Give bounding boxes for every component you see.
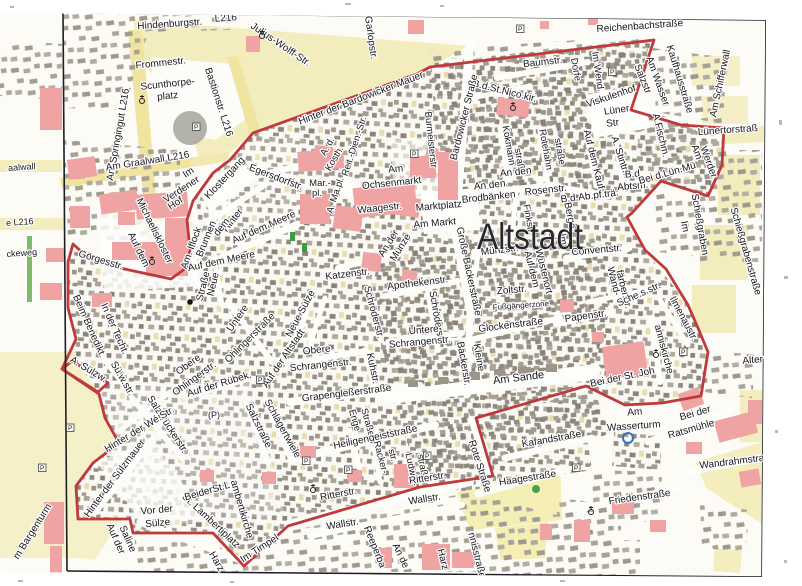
svg-text:P: P	[518, 26, 522, 33]
svg-text:Am: Am	[388, 163, 404, 176]
svg-text:ckeweg: ckeweg	[6, 247, 37, 259]
svg-text:P: P	[346, 467, 350, 474]
svg-text:pl.: pl.	[312, 188, 322, 199]
svg-text:Altstadt: Altstadt	[477, 216, 584, 257]
svg-text:P: P	[68, 425, 72, 432]
svg-text:Sülze: Sülze	[145, 517, 171, 530]
svg-text:P: P	[258, 377, 262, 384]
svg-text:P: P	[412, 151, 416, 158]
svg-text:Am: Am	[627, 406, 643, 418]
svg-text:Im: Im	[678, 220, 691, 233]
svg-text:P: P	[194, 124, 198, 131]
svg-text:P: P	[40, 465, 44, 472]
svg-text:aalwall: aalwall	[8, 161, 36, 173]
svg-text:P: P	[610, 69, 614, 76]
svg-text:(P): (P)	[208, 410, 220, 420]
svg-text:Alter: Alter	[742, 354, 764, 367]
svg-text:P: P	[304, 458, 308, 465]
svg-text:P: P	[681, 349, 685, 356]
svg-text:platz: platz	[157, 90, 179, 103]
svg-text:Str: Str	[606, 117, 621, 130]
svg-text:P: P	[425, 453, 429, 460]
svg-text:P: P	[574, 465, 578, 472]
svg-text:e L216: e L216	[6, 216, 34, 228]
